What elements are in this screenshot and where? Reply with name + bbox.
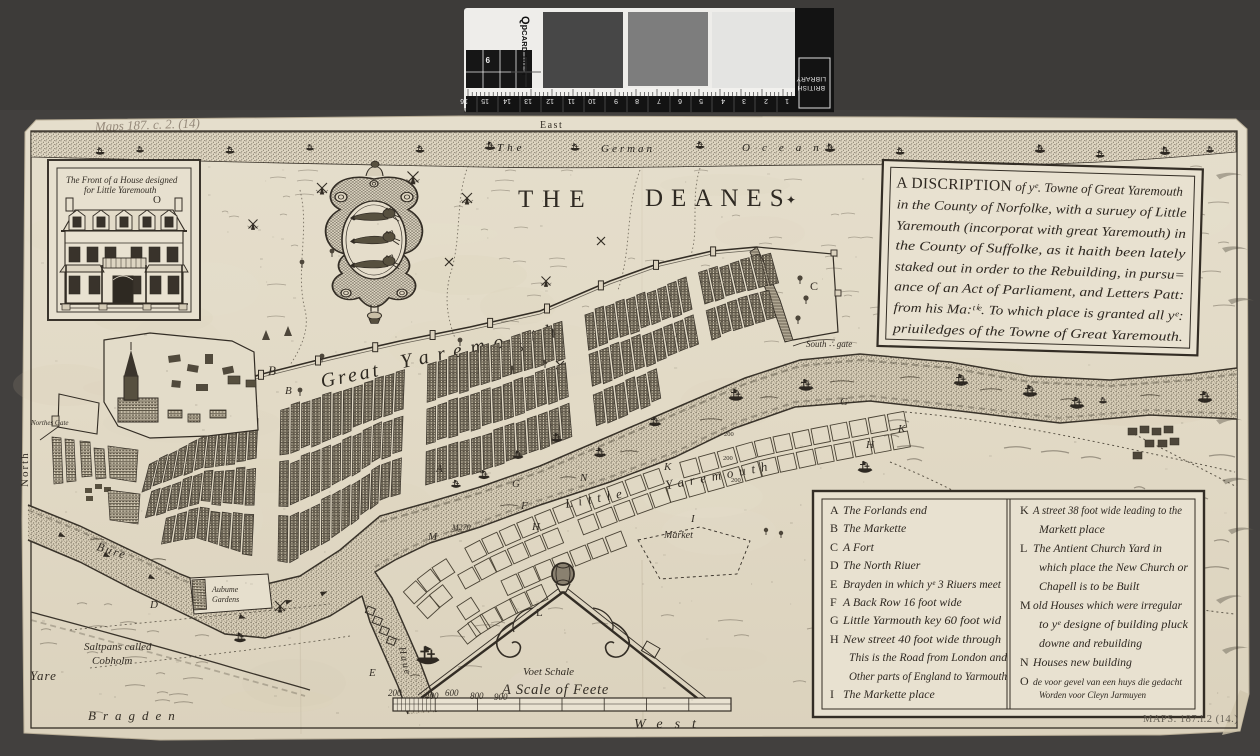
- svg-text:O: O: [1020, 674, 1029, 688]
- svg-text:C: C: [810, 279, 818, 293]
- svg-text:DEANES: DEANES: [645, 185, 792, 212]
- svg-text:F: F: [520, 500, 528, 512]
- svg-text:✦: ✦: [786, 193, 796, 207]
- svg-text:G: G: [512, 478, 520, 490]
- svg-text:5: 5: [699, 97, 703, 104]
- svg-text:old Houses which were irregula: old Houses which were irregular: [1033, 598, 1182, 612]
- svg-text:C: C: [830, 540, 838, 554]
- svg-text:4: 4: [721, 97, 725, 104]
- svg-text:South ∴ gate: South ∴ gate: [806, 339, 852, 349]
- svg-text:A Scale of Feete: A Scale of Feete: [501, 682, 609, 698]
- svg-text:Houses new building: Houses new building: [1032, 655, 1132, 669]
- svg-text:QpCARD 101 v4: QpCARD 101 v4: [519, 16, 531, 75]
- svg-text:1: 1: [785, 97, 789, 104]
- svg-text:O: O: [153, 194, 161, 206]
- svg-text:Yare: Yare: [30, 668, 57, 683]
- svg-text:B: B: [830, 521, 838, 535]
- svg-text:for Little Yaremouth: for Little Yaremouth: [84, 185, 157, 195]
- svg-text:Markett place: Markett place: [1038, 522, 1105, 536]
- svg-text:13: 13: [524, 97, 532, 104]
- svg-text:I: I: [830, 687, 834, 701]
- svg-text:600: 600: [445, 688, 459, 698]
- svg-text:de voor gevel van een huys die: de voor gevel van een huys die gedacht: [1033, 677, 1183, 687]
- svg-text:Brayden in which yᵉ 3 Riuers m: Brayden in which yᵉ 3 Riuers meet: [843, 577, 1002, 591]
- svg-text:14: 14: [503, 97, 511, 104]
- svg-text:MAPS. 187.l.2 (14.): MAPS. 187.l.2 (14.): [1143, 714, 1238, 725]
- svg-text:10: 10: [588, 97, 596, 104]
- svg-text:The Markette: The Markette: [843, 521, 906, 535]
- svg-text:East: East: [540, 120, 563, 131]
- svg-text:8: 8: [635, 97, 639, 104]
- svg-text:3: 3: [742, 97, 746, 104]
- svg-text:M270: M270: [451, 523, 471, 532]
- svg-text:D: D: [149, 599, 158, 611]
- svg-text:H: H: [830, 632, 839, 646]
- svg-text:2: 2: [764, 97, 768, 104]
- svg-text:K: K: [897, 423, 906, 435]
- svg-text:B: B: [285, 385, 292, 397]
- svg-text:German: German: [601, 143, 655, 155]
- svg-text:M: M: [1020, 598, 1031, 612]
- svg-text:200: 200: [388, 688, 402, 698]
- svg-text:Aubume: Aubume: [211, 585, 239, 594]
- svg-text:Saltpans called: Saltpans called: [84, 641, 152, 653]
- svg-text:K: K: [663, 461, 672, 473]
- svg-text:G: G: [830, 613, 839, 627]
- svg-text:9: 9: [614, 97, 618, 104]
- svg-text:downe and rebuilding: downe and rebuilding: [1039, 636, 1142, 650]
- svg-text:15: 15: [481, 97, 489, 104]
- svg-text:200: 200: [724, 431, 734, 438]
- svg-text:A: A: [435, 463, 443, 475]
- svg-text:The Antient Church Yard in: The Antient Church Yard in: [1033, 541, 1162, 555]
- svg-text:A street 38 foot wide leading: A street 38 foot wide leading to the: [1032, 503, 1182, 517]
- svg-text:6: 6: [678, 97, 682, 104]
- svg-text:The: The: [497, 142, 526, 154]
- svg-text:7: 7: [657, 97, 661, 104]
- svg-text:12: 12: [546, 97, 554, 104]
- svg-text:200: 200: [723, 455, 733, 462]
- svg-text:16: 16: [460, 97, 468, 104]
- svg-text:9: 9: [485, 55, 490, 64]
- svg-text:F: F: [830, 595, 837, 609]
- svg-text:N: N: [579, 472, 588, 484]
- svg-text:L: L: [536, 607, 543, 619]
- svg-text:400: 400: [425, 691, 439, 701]
- svg-text:New street 40 foot wide throug: New street 40 foot wide through: [842, 632, 1001, 646]
- svg-text:A Back Row 16 foot wide: A Back Row 16 foot wide: [842, 595, 962, 609]
- svg-text:200: 200: [731, 477, 741, 484]
- svg-text:Cobholm: Cobholm: [92, 655, 132, 667]
- svg-text:M: M: [427, 531, 438, 543]
- svg-text:A: A: [830, 503, 839, 517]
- svg-text:D: D: [830, 558, 839, 572]
- svg-text:This is the Road from London a: This is the Road from London and: [849, 650, 1007, 664]
- svg-text:E: E: [368, 667, 376, 679]
- svg-text:N: N: [1020, 655, 1029, 669]
- svg-text:G: G: [840, 396, 848, 408]
- svg-text:Little Yarmouth key 60 foot wi: Little Yarmouth key 60 foot wid: [842, 613, 1001, 627]
- svg-text:Chapell is to be Built: Chapell is to be Built: [1039, 579, 1140, 593]
- svg-text:800: 800: [470, 691, 484, 701]
- svg-text:Market: Market: [663, 530, 693, 541]
- svg-text:BRITISH: BRITISH: [797, 84, 825, 91]
- svg-text:West: West: [634, 717, 708, 732]
- svg-text:The Front of a House designed: The Front of a House designed: [66, 175, 178, 185]
- svg-text:Worden voor Cleyn Jarmuyen: Worden voor Cleyn Jarmuyen: [1039, 690, 1147, 700]
- svg-text:The Forlands end: The Forlands end: [843, 503, 927, 517]
- svg-text:The North Riuer: The North Riuer: [843, 558, 921, 572]
- svg-text:K: K: [1020, 503, 1029, 517]
- svg-text:H: H: [531, 521, 541, 533]
- svg-text:E: E: [830, 577, 837, 591]
- svg-text:which place the New Church or: which place the New Church or: [1039, 560, 1188, 574]
- svg-text:THE: THE: [518, 186, 594, 213]
- svg-text:A Fort: A Fort: [842, 540, 875, 554]
- svg-text:Gardens: Gardens: [212, 595, 239, 604]
- svg-text:B: B: [268, 363, 276, 378]
- svg-text:L: L: [1020, 541, 1027, 555]
- svg-text:Other parts of England to Yarm: Other parts of England to Yarmouth: [849, 669, 1007, 683]
- svg-text:to yᵉ designe of building pluc: to yᵉ designe of building pluck: [1039, 617, 1189, 631]
- svg-text:Voet Schale: Voet Schale: [523, 666, 574, 678]
- svg-text:H: H: [865, 439, 875, 451]
- svg-text:Bragden: Bragden: [88, 708, 182, 723]
- svg-text:North: North: [19, 451, 31, 487]
- svg-text:The Markette place: The Markette place: [843, 687, 935, 701]
- svg-text:LIBRARY: LIBRARY: [796, 75, 826, 82]
- svg-text:Northes Gate: Northes Gate: [30, 419, 69, 427]
- svg-text:11: 11: [568, 97, 575, 104]
